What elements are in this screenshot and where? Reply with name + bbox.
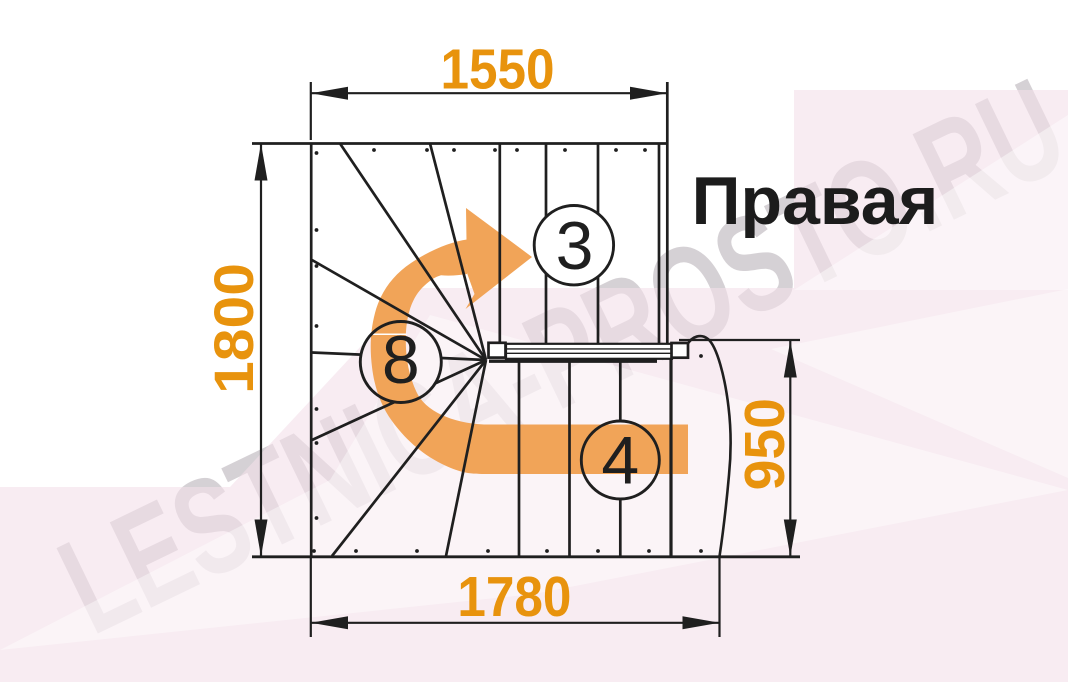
svg-text:1800: 1800	[203, 263, 265, 394]
svg-text:950: 950	[732, 398, 796, 490]
svg-text:4: 4	[601, 423, 639, 499]
svg-text:Правая: Правая	[692, 163, 939, 239]
svg-text:1780: 1780	[457, 565, 571, 628]
svg-text:3: 3	[556, 208, 594, 284]
svg-text:8: 8	[382, 322, 420, 398]
svg-text:1550: 1550	[440, 38, 554, 101]
